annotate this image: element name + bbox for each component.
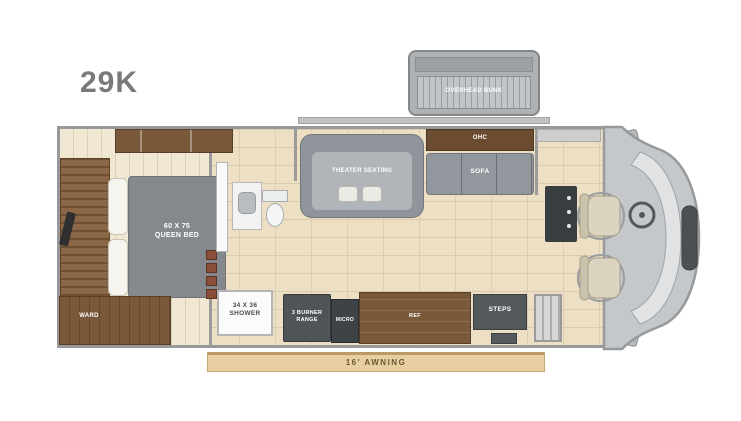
tv-knob-icon [567, 196, 571, 200]
driver-seat [588, 196, 620, 236]
floorplan-29k: 29K OVERHEAD BUNK 60 X 75 QUEEN BED WARD… [0, 0, 741, 421]
awning-label: 16' AWNING [207, 358, 545, 368]
steering-wheel-hub [639, 212, 645, 218]
passenger-seat [588, 258, 620, 298]
front-window-glass [682, 206, 697, 270]
living-tv [545, 186, 577, 242]
tv-knob-icon [567, 224, 571, 228]
tv-knob-icon [567, 210, 571, 214]
